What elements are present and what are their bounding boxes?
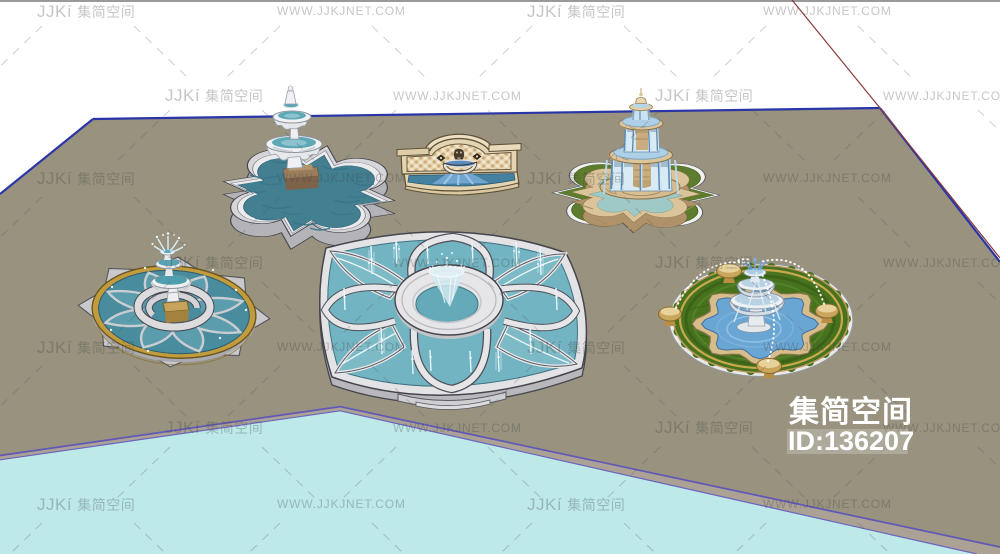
svg-text:WWW.JJKJNET.COM: WWW.JJKJNET.COM (763, 4, 892, 18)
svg-text:WWW.JJKJNET.COM: WWW.JJKJNET.COM (763, 340, 892, 354)
svg-text:JJKí 集简空间: JJKí 集简空间 (527, 338, 625, 357)
svg-text:JJKí 集简空间: JJKí 集简空间 (37, 338, 135, 357)
svg-text:ID:136207: ID:136207 (788, 426, 914, 456)
svg-text:WWW.JJKJNET.COM: WWW.JJKJNET.COM (883, 89, 1000, 103)
svg-text:JJKí 集简空间: JJKí 集简空间 (655, 86, 753, 105)
svg-text:WWW.JJKJNET.COM: WWW.JJKJNET.COM (393, 256, 522, 270)
svg-text:JJKí 集简空间: JJKí 集简空间 (165, 253, 263, 272)
svg-text:WWW.JJKJNET.COM: WWW.JJKJNET.COM (277, 340, 406, 354)
svg-text:集简空间: 集简空间 (788, 395, 913, 429)
svg-text:JJKí 集简空间: JJKí 集简空间 (37, 169, 135, 188)
svg-text:JJKí 集简空间: JJKí 集简空间 (527, 2, 625, 21)
svg-text:JJKí 集简空间: JJKí 集简空间 (527, 169, 625, 188)
svg-text:WWW.JJKJNET.COM: WWW.JJKJNET.COM (393, 421, 522, 435)
svg-text:WWW.JJKJNET.COM: WWW.JJKJNET.COM (393, 89, 522, 103)
svg-text:JJKí 集简空间: JJKí 集简空间 (655, 253, 753, 272)
svg-text:JJKí 集简空间: JJKí 集简空间 (37, 495, 135, 514)
svg-text:JJKí 集简空间: JJKí 集简空间 (655, 418, 753, 437)
svg-text:JJKí 集简空间: JJKí 集简空间 (527, 495, 625, 514)
svg-text:WWW.JJKJNET.COM: WWW.JJKJNET.COM (277, 497, 406, 511)
svg-text:WWW.JJKJNET.COM: WWW.JJKJNET.COM (277, 171, 406, 185)
svg-text:WWW.JJKJNET.COM: WWW.JJKJNET.COM (883, 256, 1000, 270)
svg-text:WWW.JJKJNET.COM: WWW.JJKJNET.COM (763, 171, 892, 185)
svg-text:JJKí 集简空间: JJKí 集简空间 (165, 418, 263, 437)
svg-text:WWW.JJKJNET.COM: WWW.JJKJNET.COM (277, 4, 406, 18)
svg-text:JJKí 集简空间: JJKí 集简空间 (165, 86, 263, 105)
svg-text:WWW.JJKJNET.COM: WWW.JJKJNET.COM (763, 497, 892, 511)
svg-text:JJKí 集简空间: JJKí 集简空间 (37, 2, 135, 21)
